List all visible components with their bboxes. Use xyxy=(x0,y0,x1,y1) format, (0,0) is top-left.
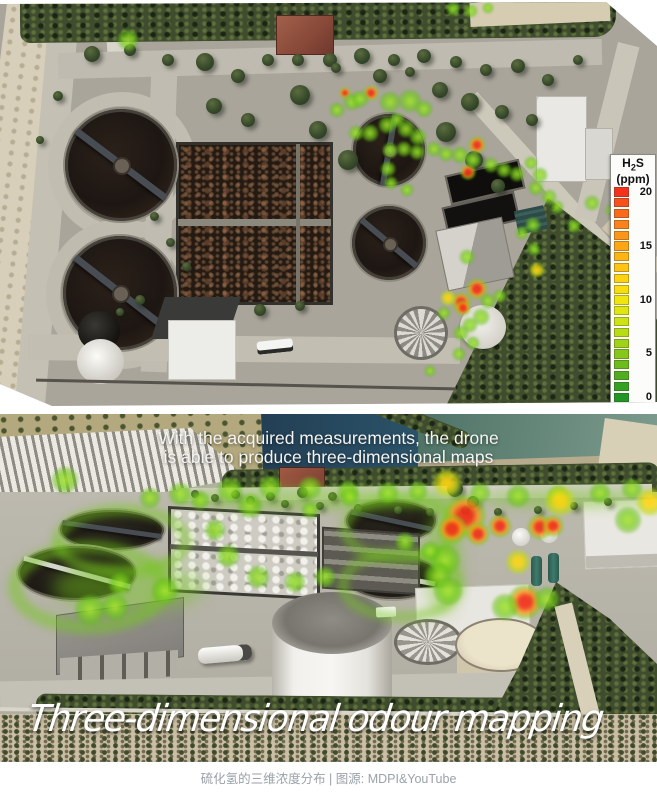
heat-spot xyxy=(550,200,564,214)
legend-swatch-row xyxy=(614,252,652,261)
caption: 硫化氢的三维浓度分布 | 图源: MDPI&YouTube xyxy=(0,768,657,787)
heat-spot xyxy=(505,549,531,575)
legend-swatch-row: 20 xyxy=(614,187,652,196)
heat-spot xyxy=(408,481,428,501)
heat-spot xyxy=(168,482,192,506)
heat-spot xyxy=(509,166,525,182)
heat-spot xyxy=(482,2,494,14)
satellite-photo: H2S (ppm) 20151050 xyxy=(0,2,657,406)
legend-tick-label: 0 xyxy=(646,393,652,402)
heat-spot xyxy=(378,116,396,134)
legend-swatch xyxy=(614,393,629,402)
legend-swatch-row xyxy=(614,274,652,283)
heat-spot xyxy=(348,125,364,141)
heat-spot xyxy=(384,176,398,190)
legend-swatch-row xyxy=(614,360,652,369)
legend-swatch-row xyxy=(614,231,652,240)
legend-swatch xyxy=(614,263,629,272)
heat-overlay-top xyxy=(0,2,657,406)
legend-swatch-row xyxy=(614,220,652,229)
heat-spot xyxy=(139,487,161,509)
heat-spot xyxy=(258,475,282,499)
figure-composite: { "caption": "硫化氢的三维浓度分布 | 图源: MDPI&YouT… xyxy=(0,0,657,793)
legend-tick-label: 10 xyxy=(640,296,652,305)
heat-spot xyxy=(395,532,415,552)
legend-swatch-row: 15 xyxy=(614,241,652,250)
legend-swatch xyxy=(614,360,629,369)
heat-spot xyxy=(506,484,530,508)
heat-spot xyxy=(237,493,263,519)
heat-spot xyxy=(415,100,433,118)
heat-spot xyxy=(614,506,642,534)
heat-spot xyxy=(440,290,456,306)
heat-spot xyxy=(216,544,240,568)
legend-tick-label: 15 xyxy=(640,242,652,251)
heat-spot xyxy=(314,566,336,588)
heat-spot xyxy=(534,586,560,612)
legend-swatch xyxy=(614,306,629,315)
legend-swatch xyxy=(614,295,629,304)
heat-spot xyxy=(424,365,436,377)
video-title: Three-dimensional odour mapping xyxy=(26,697,574,740)
heat-spot xyxy=(493,289,507,303)
legend-swatch xyxy=(614,349,629,358)
legend-swatch-row xyxy=(614,198,652,207)
legend-swatch xyxy=(614,241,629,250)
heat-spot xyxy=(433,576,463,606)
legend-swatch-row xyxy=(614,339,652,348)
legend-swatch xyxy=(614,209,629,218)
legend-swatch-row xyxy=(614,263,652,272)
heat-spot xyxy=(584,195,600,211)
heat-spot xyxy=(515,226,529,240)
heat-spot xyxy=(246,565,270,589)
legend-swatch-row xyxy=(614,382,652,391)
legend-tick-label: 5 xyxy=(646,349,652,358)
subtitle-line-2: is able to produce three-dimensional map… xyxy=(0,448,657,467)
heat-spot xyxy=(567,219,581,233)
legend-swatch-row xyxy=(614,209,652,218)
legend-unit: (ppm) xyxy=(614,173,652,185)
legend-swatch xyxy=(614,371,629,380)
legend-swatch xyxy=(614,231,629,240)
heat-spot xyxy=(491,593,519,621)
legend-swatch-row: 0 xyxy=(614,393,652,402)
drone-photo: With the acquired measurements, the dron… xyxy=(0,414,657,762)
legend-tick-label: 20 xyxy=(640,188,652,197)
legend-swatch xyxy=(614,198,629,207)
heat-spot xyxy=(101,593,129,621)
heat-spot xyxy=(51,466,79,494)
legend-swatch-row: 5 xyxy=(614,349,652,358)
legend-swatch xyxy=(614,274,629,283)
heat-spot xyxy=(437,514,467,544)
legend-box: H2S (ppm) 20151050 xyxy=(610,154,656,404)
heat-spot xyxy=(377,482,399,504)
heat-spot xyxy=(400,183,414,197)
heat-spot xyxy=(488,514,512,538)
heat-spot xyxy=(351,90,369,108)
heat-spot xyxy=(301,501,319,519)
heat-spot xyxy=(298,476,322,500)
subtitle-line-1: With the acquired measurements, the dron… xyxy=(0,429,657,448)
heat-spot xyxy=(529,262,545,278)
legend-swatch-row: 10 xyxy=(614,295,652,304)
legend-swatch-row xyxy=(614,306,652,315)
heat-spot xyxy=(432,468,462,498)
legend-swatch xyxy=(614,328,629,337)
heat-spot xyxy=(151,577,179,605)
legend-swatch-row xyxy=(614,285,652,294)
heat-spot xyxy=(465,152,481,168)
heat-spot xyxy=(329,102,345,118)
legend-swatch xyxy=(614,220,629,229)
heat-spot xyxy=(409,144,425,160)
legend-swatch-row xyxy=(614,317,652,326)
legend-title: H2S xyxy=(614,157,652,173)
heat-spot xyxy=(542,515,564,537)
heat-spot xyxy=(589,482,611,504)
heat-spot xyxy=(437,306,451,320)
legend-swatch-row xyxy=(614,328,652,337)
heat-spot xyxy=(204,519,226,541)
legend-swatch xyxy=(614,339,629,348)
heat-spot xyxy=(190,490,210,510)
legend-swatch xyxy=(614,317,629,326)
legend-swatch xyxy=(614,285,629,294)
heat-spot xyxy=(284,571,306,593)
heat-spot xyxy=(464,4,478,18)
heat-spot xyxy=(455,300,471,316)
heat-spot xyxy=(466,522,490,546)
heat-spot xyxy=(527,242,541,256)
heat-spot xyxy=(380,161,396,177)
legend-swatch-row xyxy=(614,371,652,380)
heat-spot xyxy=(340,487,360,507)
legend-swatch xyxy=(614,382,629,391)
legend-swatch xyxy=(614,187,629,196)
heat-spot xyxy=(452,347,466,361)
heat-spot xyxy=(117,29,139,51)
legend-swatch xyxy=(614,252,629,261)
heat-spot xyxy=(420,541,440,561)
heat-spot xyxy=(466,336,480,350)
heat-spot xyxy=(459,249,475,265)
heat-spot xyxy=(544,485,576,517)
heat-spot xyxy=(446,2,460,16)
legend-swatches: 20151050 xyxy=(614,187,652,401)
